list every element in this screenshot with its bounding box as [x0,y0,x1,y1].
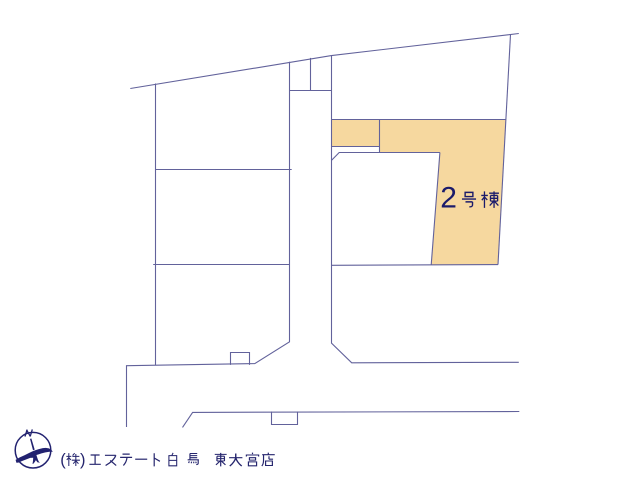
svg-text:2: 2 [440,182,457,215]
svg-text:(: ( [60,451,66,469]
svg-text:): ) [80,451,86,469]
